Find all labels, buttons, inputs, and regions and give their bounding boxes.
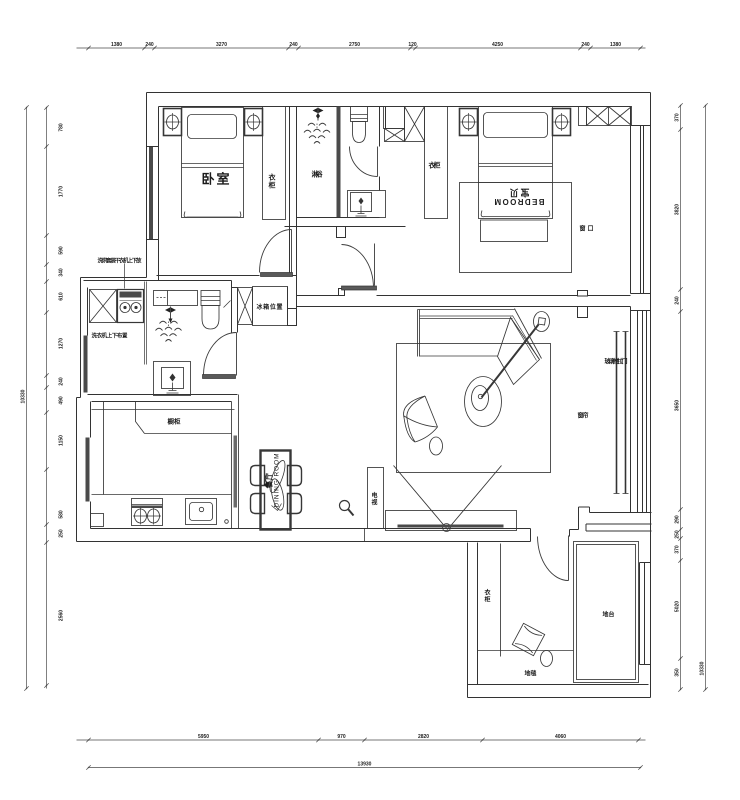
svg-text:2750: 2750 [349,42,360,48]
svg-text:1770: 1770 [59,186,65,197]
svg-text:窗口: 窗口 [580,225,594,233]
svg-text:250: 250 [675,530,681,539]
svg-text:970: 970 [337,734,346,740]
svg-text:590: 590 [59,246,65,255]
svg-text:240: 240 [581,42,590,48]
svg-text:冰箱位置: 冰箱位置 [257,303,283,311]
svg-text:340: 340 [59,268,65,277]
svg-text:240: 240 [59,377,65,386]
svg-text:120: 120 [408,42,417,48]
svg-text:地毯: 地毯 [525,670,537,678]
svg-text:1270: 1270 [59,338,65,349]
svg-text:370: 370 [675,545,681,554]
svg-text:290: 290 [675,515,681,524]
svg-text:4250: 4250 [492,42,503,48]
svg-text:13930: 13930 [358,762,372,768]
svg-text:10330: 10330 [700,661,706,675]
svg-text:250: 250 [59,529,65,538]
svg-text:柜: 柜 [484,596,491,604]
svg-text:衣柜: 衣柜 [429,161,441,170]
svg-text:地台: 地台 [603,611,615,619]
svg-text:1150: 1150 [59,435,65,446]
svg-text:视: 视 [372,499,378,507]
svg-text:4060: 4060 [555,734,566,740]
svg-text:衣: 衣 [269,173,277,182]
svg-text:3820: 3820 [675,204,681,215]
svg-text:BEDROOM: BEDROOM [494,197,544,206]
svg-text:240: 240 [145,42,154,48]
svg-text:卧室: 卧室 [202,172,230,187]
svg-text:350: 350 [675,668,681,677]
svg-text:780: 780 [59,123,65,132]
svg-text:5020: 5020 [675,601,681,612]
svg-text:宝贝: 宝贝 [510,188,530,199]
svg-text:3650: 3650 [675,400,681,411]
svg-text:橱柜: 橱柜 [168,417,182,426]
svg-text:3270: 3270 [216,42,227,48]
svg-text:2820: 2820 [418,734,429,740]
svg-text:洗衣机上下布置: 洗衣机上下布置 [92,332,128,340]
svg-text:610: 610 [59,292,65,301]
svg-text:衣: 衣 [485,589,491,597]
svg-text:580: 580 [59,510,65,519]
svg-text:370: 370 [675,113,681,122]
svg-text:柜: 柜 [268,181,276,190]
svg-text:240: 240 [289,42,298,48]
svg-text:2560: 2560 [59,610,65,621]
svg-text:10330: 10330 [21,389,27,403]
svg-text:490: 490 [59,396,65,405]
svg-text:DINING ROOM: DINING ROOM [274,454,281,508]
svg-text:窗帘: 窗帘 [578,412,589,420]
svg-text:1380: 1380 [111,42,122,48]
svg-text:1380: 1380 [610,42,621,48]
svg-text:淋浴: 淋浴 [312,170,324,179]
svg-text:洗烘套装干衣机上下放: 洗烘套装干衣机上下放 [98,257,142,265]
svg-text:玻璃推拉门: 玻璃推拉门 [605,358,628,366]
svg-text:电: 电 [372,492,378,500]
svg-text:240: 240 [675,296,681,305]
svg-text:5950: 5950 [198,734,209,740]
